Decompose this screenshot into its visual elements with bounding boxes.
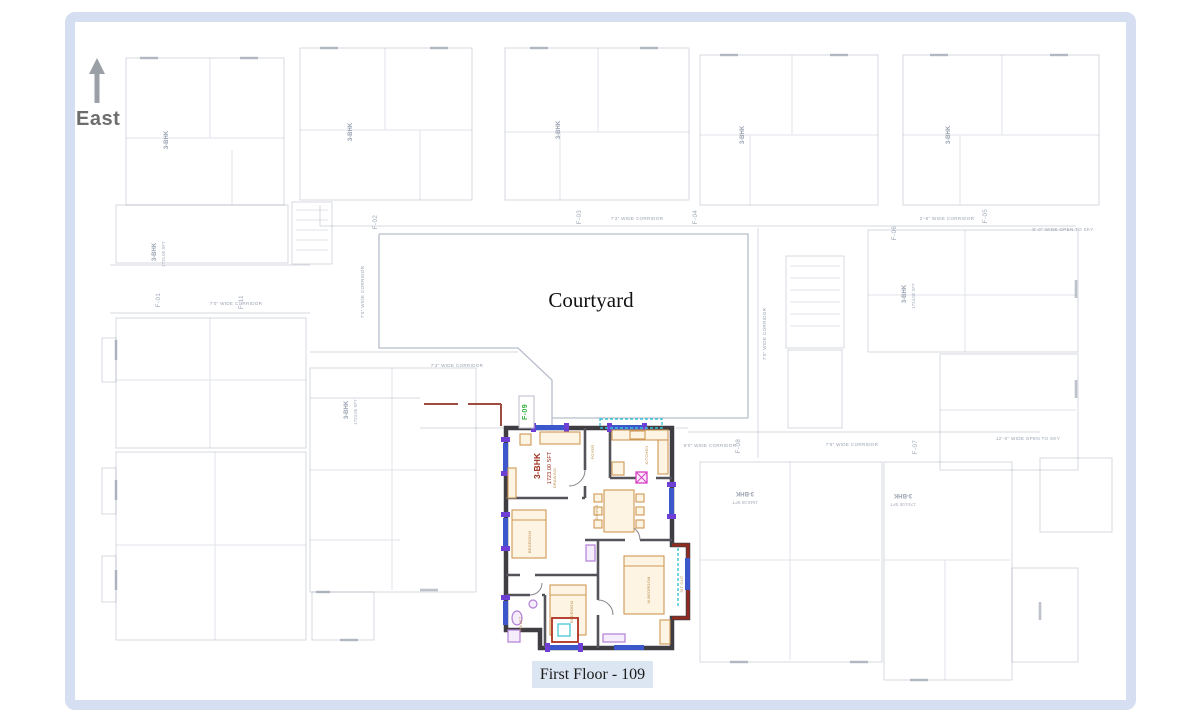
unit-label-u-room: SIT OUT	[679, 575, 684, 592]
plan-label-unitid: F-07	[912, 440, 919, 455]
plan-label-unitid: F-08	[735, 439, 742, 454]
unit-label-u-id: F-09	[522, 404, 529, 420]
plan-label-bhk: 3-BHK	[946, 125, 952, 144]
unit-label-u-room: DINING	[594, 504, 599, 519]
plan-label-corridor: 8'0" WIDE CORRIDOR	[684, 443, 737, 448]
plan-label-area: 1640.00 SFT	[732, 500, 758, 505]
unit-label-u-room: KITCHEN	[644, 446, 649, 465]
plan-label-area: 1724.00 SFT	[911, 283, 916, 309]
plan-label-corridor: 7'3" WIDE CORRIDOR	[611, 216, 664, 221]
plan-label-corridor: 8'-0" WIDE OPEN TO SKY	[1032, 227, 1093, 232]
plan-label-corridor: 2'-9" WIDE CORRIDOR	[920, 216, 975, 221]
plan-label-unitid: F-02	[372, 215, 379, 230]
plan-label-bhk: 3-BHK	[344, 400, 350, 419]
faint-plan-linework	[102, 48, 1112, 680]
plan-label-corridor: 7'3" WIDE CORRIDOR	[431, 363, 484, 368]
plan-labels: 7'3" WIDE CORRIDOR2'-9" WIDE CORRIDOR8'-…	[152, 120, 1094, 507]
unit-label-u-room: DRAWING	[552, 468, 557, 489]
plan-label-unitid: F-05	[982, 209, 989, 224]
unit-label-u-room: M.BEDROOM	[646, 577, 651, 604]
plan-label-corridor: 12'-0" WIDE OPEN TO SKY	[996, 436, 1060, 441]
plan-label-bhk: 3-BHK	[556, 120, 562, 139]
plan-label-unitid: F-11	[238, 295, 245, 309]
plan-label-bhk: 3-BHK	[164, 130, 170, 149]
plan-label-bhk: 3-BHK	[348, 122, 354, 141]
plan-label-area: 1744.00 SFT	[890, 502, 916, 507]
plan-label-unitid: F-06	[891, 226, 898, 241]
plan-label-unitid: F-01	[155, 293, 162, 308]
plan-label-corridor: 7'0" WIDE CORRIDOR	[210, 301, 263, 306]
plan-label-bhk: 3-BHK	[740, 125, 746, 144]
unit-label-u-room: BEDROOM	[569, 601, 574, 623]
unit-label-u-bhk: 3-BHK	[532, 452, 542, 479]
plan-label-bhk: 3-BHK	[735, 490, 754, 496]
plan-label-corridor: 7'8" WIDE CORRIDOR	[826, 442, 879, 447]
floor-plan-page: { "compass": {"label": "East"}, "courtya…	[0, 0, 1200, 720]
highlighted-unit-f09	[501, 396, 690, 652]
plan-label-corridor: 7'0" WIDE CORRIDOR	[360, 265, 365, 318]
plan-label-area: 1723.00 SFT	[353, 399, 358, 425]
plan-label-corridor: 7'3" WIDE CORRIDOR	[762, 307, 767, 360]
unit-label-u-room: BEDROOM	[527, 531, 532, 553]
floor-plan-svg: 7'3" WIDE CORRIDOR2'-9" WIDE CORRIDOR8'-…	[0, 0, 1200, 720]
unit-label-u-room: FOYER	[590, 445, 595, 460]
east-arrow-icon	[89, 58, 105, 103]
east-compass-label: East	[76, 108, 136, 131]
floor-caption: First Floor - 109	[532, 661, 653, 688]
courtyard-outline	[379, 234, 748, 428]
plan-label-unitid: F-04	[692, 210, 699, 225]
courtyard-label: Courtyard	[500, 288, 682, 313]
plan-label-bhk: 3-BHK	[902, 284, 908, 303]
plan-label-bhk: 3-BHK	[152, 242, 158, 261]
plan-label-bhk: 3-BHK	[893, 492, 912, 498]
plan-label-area: 1731.00 SFT	[161, 241, 166, 267]
window-ticks	[116, 48, 1076, 680]
plan-label-unitid: F-03	[576, 210, 583, 225]
unit-label-u-room: TOILET	[518, 616, 523, 631]
